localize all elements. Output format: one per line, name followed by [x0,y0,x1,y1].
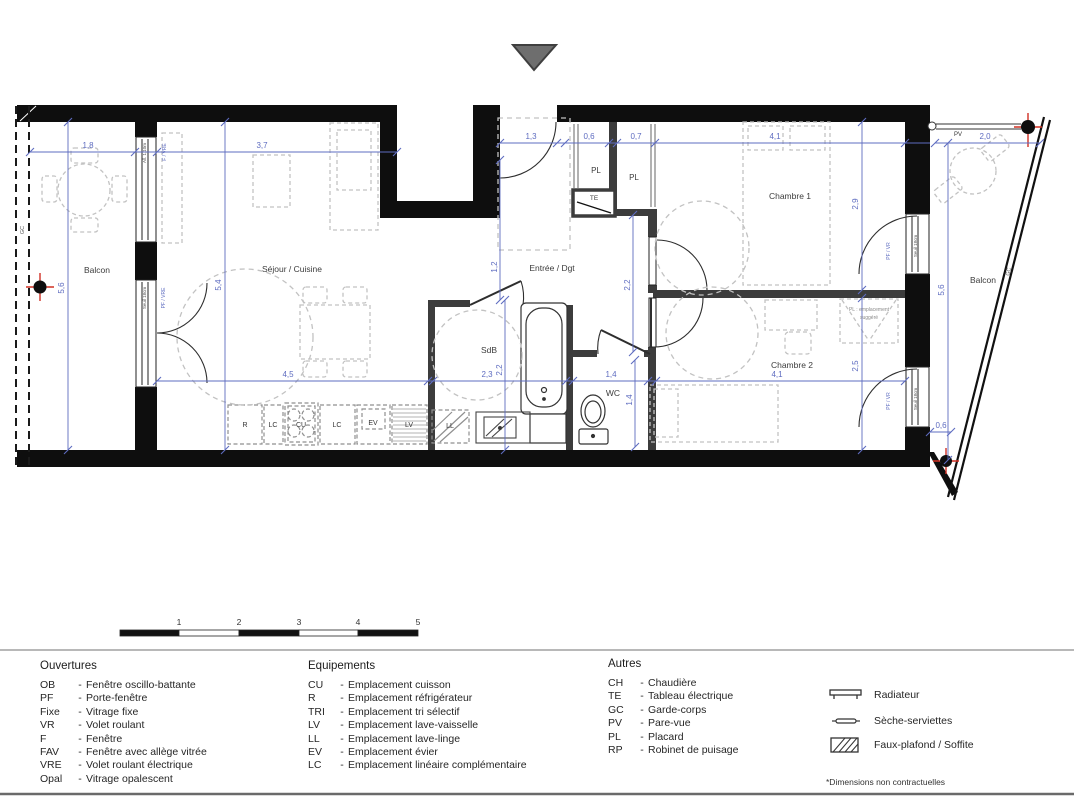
legend-autres: Autres CH-Chaudière TE-Tableau électriqu… [608,658,739,757]
room-label-sejour: Séjour / Cuisine [262,264,322,274]
pare-vue-label: PV [954,132,962,138]
guardrail-left [16,106,29,466]
vanity-sink [476,412,530,443]
floor-plan-page: 1,8 3,7 1,3 0,6 0,7 4,1 2,0 4,5 2,3 1,4 … [0,0,1074,800]
toilet [579,395,608,444]
scale-label: 4 [356,617,361,627]
towel-dryer-icon [828,712,864,730]
legend-code: PV [608,717,636,730]
kitchen-code-ll: LL [446,423,454,430]
legend-separator: - [636,744,648,757]
kitchen-code-lv: LV [405,422,413,429]
door-code: PF / VR [886,242,892,260]
legend-row: TRI-Emplacement tri sélectif [308,706,527,719]
scale-label: 5 [416,617,421,627]
legend-separator: - [74,773,86,786]
legend-row: R-Emplacement réfrigérateur [308,692,527,705]
legend-row: OB-Fenêtre oscillo-battante [40,679,207,692]
legend-symbol-label: Sèche-serviettes [874,715,952,727]
legend-separator: - [74,746,86,759]
legend-separator: - [336,746,348,759]
dim-label: 4,1 [769,132,781,141]
legend-label: Fenêtre avec allège vitrée [86,746,207,759]
legend-ouvertures: Ouvertures OB-Fenêtre oscillo-battante P… [40,660,207,786]
legend-row: CH-Chaudière [608,677,739,690]
window-code: F / VRE [162,143,168,161]
legend-row: LC-Emplacement linéaire complémentaire [308,759,527,772]
legend-row: PL-Placard [608,731,739,744]
legend-row: LL-Emplacement lave-linge [308,733,527,746]
legend-row: Fixe-Vitrage fixe [40,706,207,719]
legend-row: GC-Garde-corps [608,704,739,717]
legend-code: Opal [40,773,74,786]
threshold-label: Seuil 18cm [913,388,918,411]
dim-label: 4,5 [282,370,294,379]
electrical-panel-label: TE [590,195,599,202]
legend-code: Fixe [40,706,74,719]
legend-label: Emplacement tri sélectif [348,706,527,719]
dim-label: 1,3 [525,132,537,141]
legend-code: EV [308,746,336,759]
water-tap-marker-left-icon [26,273,54,301]
legend-symbol-radiateur: Radiateur [828,686,920,704]
legend-separator: - [636,717,648,730]
legend-separator: - [636,704,648,717]
door-code: PF / VR [886,392,892,410]
legend-label: Emplacement lave-linge [348,733,527,746]
legend-row: VR-Volet roulant [40,719,207,732]
legend-separator: - [336,733,348,746]
legend-code: TE [608,690,636,703]
legend-separator: - [74,759,86,772]
legend-code: GC [608,704,636,717]
scale-label: 3 [297,617,302,627]
scale-label: 1 [177,617,182,627]
legend-separator: - [74,692,86,705]
legend-label: Emplacement cuisson [348,679,527,692]
legend-row: VRE-Volet roulant électrique [40,759,207,772]
radiator-icon [828,686,864,704]
legend-title-ouvertures: Ouvertures [40,660,207,672]
orientation-triangle-icon [513,45,556,70]
legend-label: Vitrage fixe [86,706,207,719]
scale-label: 2 [237,617,242,627]
legend-row: PF-Porte-fenêtre [40,692,207,705]
dim-label: 5,4 [214,279,223,291]
pl-suggested-label: PL : emplacement [849,307,890,313]
legend-separator: - [336,759,348,772]
legend-label: Robinet de puisage [648,744,739,757]
legend-row: F-Fenêtre [40,733,207,746]
legend-separator: - [336,706,348,719]
false-ceiling-icon [828,736,864,754]
legend-label: Volet roulant [86,719,207,732]
dim-label: 4,1 [771,370,783,379]
legend-separator: - [336,719,348,732]
dim-label: 1,8 [82,141,94,150]
dim-label: 1,4 [605,370,617,379]
door-code: PF / VRE [161,287,167,309]
legend-label: Emplacement réfrigérateur [348,692,527,705]
legend-row: Opal-Vitrage opalescent [40,773,207,786]
sill-height-label: All. 1,10m [142,143,147,163]
legend-separator: - [336,679,348,692]
legend-separator: - [636,677,648,690]
kitchen-code-ev: EV [368,420,378,427]
kitchen-code-lc1: LC [269,422,278,429]
legend-label: Porte-fenêtre [86,692,207,705]
kitchen-code-cu: CU [296,422,306,429]
legend-label: Pare-vue [648,717,739,730]
legend-separator: - [636,731,648,744]
opening-annotations: F / VRE All. 1,10m PF / VRE Seuil 18cm P… [20,132,1013,410]
legend-separator: - [636,690,648,703]
legend-equipements: Equipements CU-Emplacement cuisson R-Emp… [308,660,527,773]
room-label-balcon-left: Balcon [84,265,110,275]
threshold-label: Seuil 18cm [913,235,918,258]
legend-label: Placard [648,731,739,744]
legend-title-autres: Autres [608,658,739,670]
dim-label: 5,6 [57,282,66,294]
closet-label-pl2: PL [629,173,639,182]
dim-label: 3,7 [256,141,268,150]
legend-row: TE-Tableau électrique [608,690,739,703]
legend-code: F [40,733,74,746]
dim-label: 2,5 [851,360,860,372]
legend-row: FAV-Fenêtre avec allège vitrée [40,746,207,759]
room-label-chambre1: Chambre 1 [769,191,811,201]
closet-label-pl1: PL [591,166,601,175]
dim-label: 0,7 [630,132,642,141]
legend-row: PV-Pare-vue [608,717,739,730]
legend-label: Emplacement linéaire complémentaire [348,759,527,772]
scale-bar: 1 2 3 4 5 [120,617,421,636]
kitchen-code-r: R [242,422,247,429]
legend-row: EV-Emplacement évier [308,746,527,759]
legend-label: Garde-corps [648,704,739,717]
legend-separator: - [74,706,86,719]
legend-code: RP [608,744,636,757]
legend-label: Emplacement lave-vaisselle [348,719,527,732]
legend-code: PF [40,692,74,705]
legend-code: LC [308,759,336,772]
legend-separator: - [74,733,86,746]
legend-label: Fenêtre oscillo-battante [86,679,207,692]
dim-label: 2,2 [495,364,504,376]
dim-label: 2,0 [979,132,991,141]
pare-vue-screen [928,122,1021,130]
legend-label: Chaudière [648,677,739,690]
legend-symbol-seche-serviettes: Sèche-serviettes [828,712,952,730]
legend-code: LV [308,719,336,732]
legend-label: Fenêtre [86,733,207,746]
room-label-chambre2: Chambre 2 [771,360,813,370]
dim-label: 5,6 [937,284,946,296]
room-label-wc: WC [606,388,620,398]
legend-row: CU-Emplacement cuisson [308,679,527,692]
legend-code: TRI [308,706,336,719]
room-label-sdb: SdB [481,345,497,355]
legend-code: LL [308,733,336,746]
legend-code: CH [608,677,636,690]
legend-label: Vitrage opalescent [86,773,207,786]
legend-title-equipements: Equipements [308,660,527,672]
dimensions-footnote: *Dimensions non contractuelles [826,777,945,787]
pl-suggested-label: suggéré [860,315,878,321]
guardrail-right-slant [948,117,1050,500]
legend-separator: - [336,692,348,705]
legend-code: VR [40,719,74,732]
legend-symbol-label: Faux-plafond / Soffite [874,739,974,751]
legend-label: Volet roulant électrique [86,759,207,772]
dim-label: 2,9 [851,198,860,210]
legend-symbol-label: Radiateur [874,689,920,701]
legend-code: PL [608,731,636,744]
guardrail-label: GC [20,226,26,234]
legend-label: Emplacement évier [348,746,527,759]
dim-label: 0,6 [583,132,595,141]
legend-code: OB [40,679,74,692]
legend-symbol-faux-plafond: Faux-plafond / Soffite [828,736,974,754]
legend-code: VRE [40,759,74,772]
legend-code: FAV [40,746,74,759]
kitchen-code-lc2: LC [333,422,342,429]
room-label-balcon-right: Balcon [970,275,996,285]
legend-separator: - [74,679,86,692]
legend-row: RP-Robinet de puisage [608,744,739,757]
legend-code: R [308,692,336,705]
bathtub [521,303,567,443]
threshold-label: Seuil 18cm [142,287,147,310]
legend-separator: - [74,719,86,732]
legend-row: LV-Emplacement lave-vaisselle [308,719,527,732]
room-label-entree: Entrée / Dgt [529,263,575,273]
dim-label: 1,2 [490,261,499,273]
dim-label: 1,4 [625,394,634,406]
dim-label: 2,3 [481,370,493,379]
legend-code: CU [308,679,336,692]
dim-label: 0,6 [935,421,947,430]
dim-label: 2,2 [623,279,632,291]
legend-label: Tableau électrique [648,690,739,703]
